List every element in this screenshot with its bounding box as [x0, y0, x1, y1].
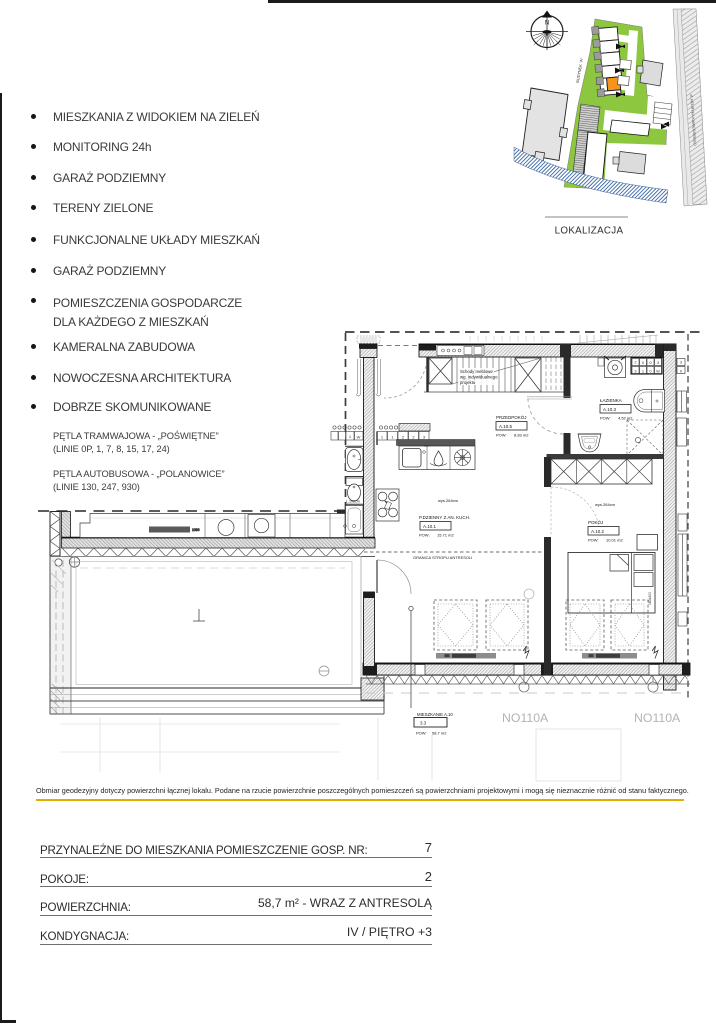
svg-text:POW:: POW: — [419, 533, 430, 538]
svg-text:PRZEDPOKÓJ: PRZEDPOKÓJ — [496, 414, 527, 420]
svg-text:4.52 m2: 4.52 m2 — [618, 416, 633, 421]
svg-text:P.DZIENNY Z AN. KUCH.: P.DZIENNY Z AN. KUCH. — [419, 515, 470, 520]
svg-text:15.71 m2: 15.71 m2 — [437, 533, 454, 538]
svg-text:W: W — [656, 369, 660, 374]
svg-text:wys.264cm: wys.264cm — [595, 502, 616, 507]
svg-text:A.10.5: A.10.5 — [499, 424, 513, 429]
svg-text:Schody meblowe: Schody meblowe — [460, 369, 493, 374]
svg-text:POW:: POW: — [588, 538, 599, 543]
svg-text:3.3: 3.3 — [420, 721, 427, 726]
svg-text:POW:: POW: — [416, 731, 427, 736]
svg-text:2: 2 — [634, 360, 636, 365]
svg-text:1090: 1090 — [192, 528, 200, 532]
svg-text:ŁAZIENKA: ŁAZIENKA — [600, 398, 622, 403]
svg-text:wys.264cm: wys.264cm — [438, 498, 459, 503]
svg-text:BUDYNEK "A": BUDYNEK "A" — [575, 57, 584, 83]
svg-text:A.10.1: A.10.1 — [423, 524, 437, 529]
svg-text:180x200: 180x200 — [648, 592, 652, 605]
svg-text:3: 3 — [680, 360, 682, 365]
svg-text:wg. indywidualnego: wg. indywidualnego — [460, 375, 498, 380]
svg-text:1: 1 — [642, 369, 644, 374]
svg-text:N: N — [545, 21, 549, 27]
svg-text:POW:: POW: — [496, 433, 507, 438]
svg-text:A.10.3: A.10.3 — [603, 407, 617, 412]
svg-text:MIESZKANIE A.10: MIESZKANIE A.10 — [417, 712, 453, 717]
svg-text:10.01 m2: 10.01 m2 — [606, 538, 623, 543]
svg-text:W: W — [357, 435, 361, 440]
svg-text:8.83 m2: 8.83 m2 — [514, 433, 529, 438]
svg-text:A.10.2: A.10.2 — [591, 529, 605, 534]
svg-text:GRANICA STROPU ANTRESOLI: GRANICA STROPU ANTRESOLI — [413, 555, 472, 560]
svg-text:POW:: POW: — [600, 416, 611, 421]
svg-text:NO110A: NO110A — [502, 711, 549, 725]
svg-text:LOKALIZACJA: LOKALIZACJA — [555, 226, 624, 237]
svg-text:L.190cm: L.190cm — [346, 500, 360, 504]
svg-text:3: 3 — [657, 360, 659, 365]
svg-text:projektu: projektu — [460, 380, 476, 385]
svg-text:3: 3 — [634, 369, 636, 374]
svg-text:POKÓJ: POKÓJ — [588, 519, 603, 525]
svg-text:NO110A: NO110A — [634, 711, 681, 725]
svg-text:RZEKA MOKRZYCA: RZEKA MOKRZYCA — [572, 196, 608, 203]
svg-text:58.7 m2: 58.7 m2 — [432, 731, 447, 736]
